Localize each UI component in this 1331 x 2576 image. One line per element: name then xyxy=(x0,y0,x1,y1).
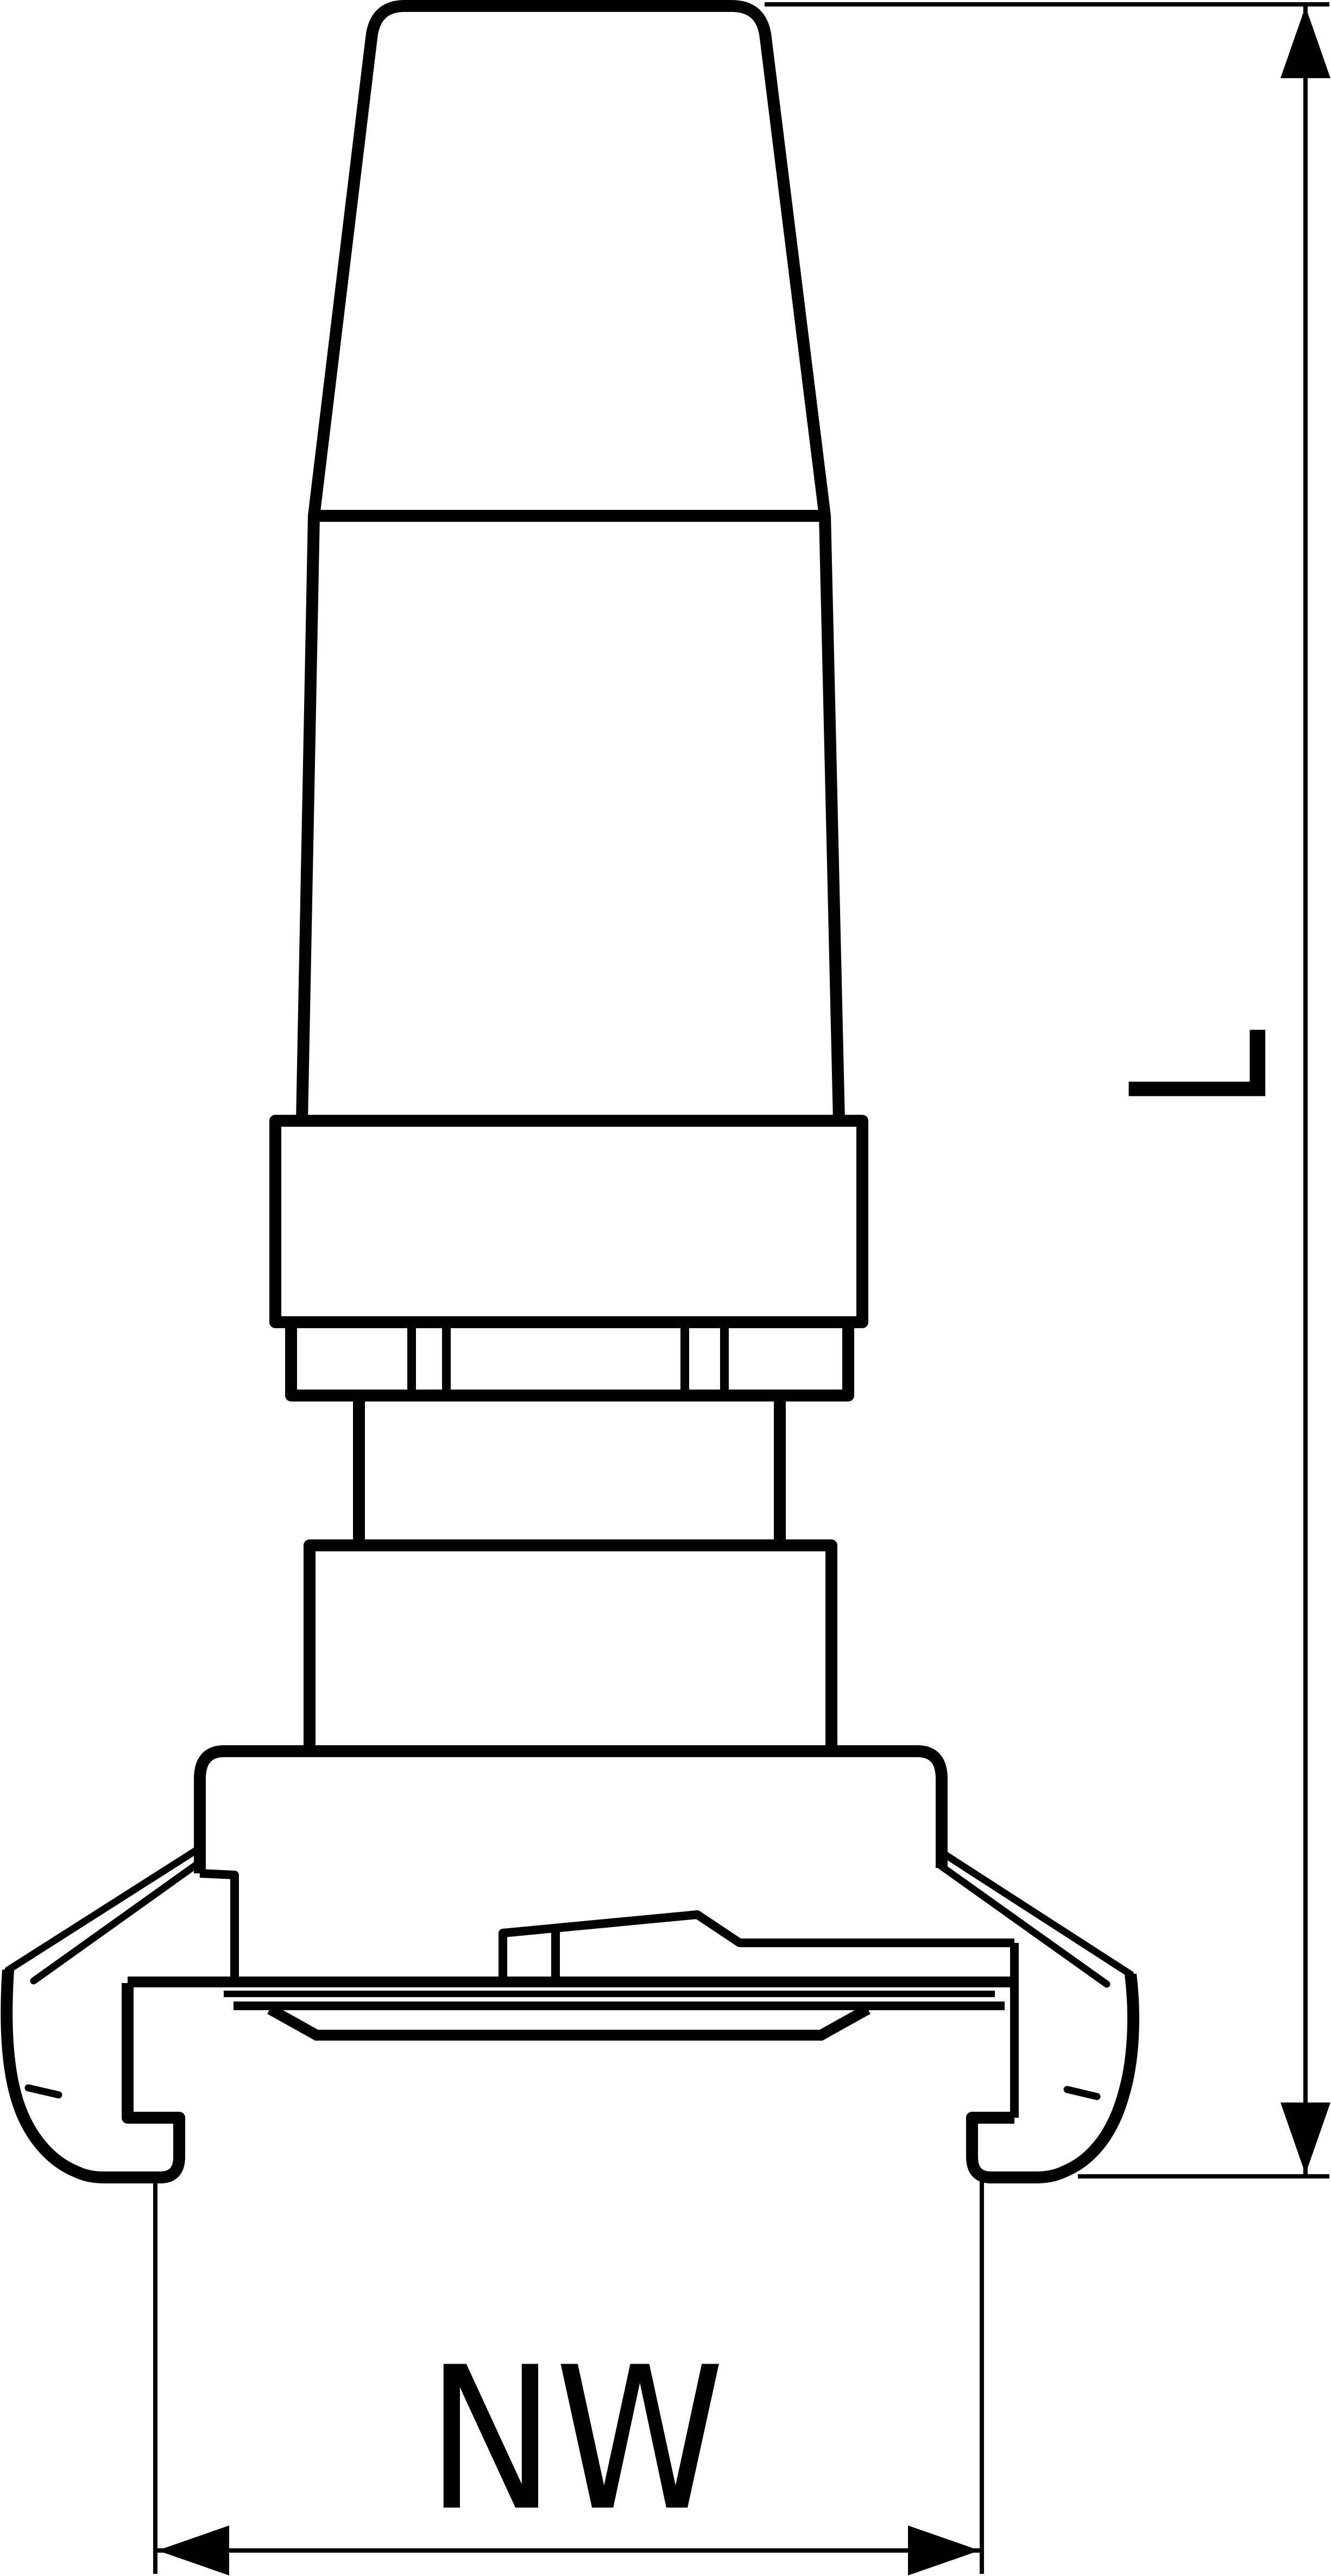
gasket-lines xyxy=(128,1982,1014,2035)
left-claw xyxy=(7,1970,179,2177)
left-claw-profile xyxy=(7,1970,179,2177)
nozzle-cone xyxy=(302,6,839,1121)
body-left-inner-wall xyxy=(200,1873,235,1979)
right-arm-outer-line xyxy=(941,1852,1131,1974)
arrow-right-icon xyxy=(908,2526,980,2575)
collar-outline xyxy=(275,1121,862,1322)
length-dimension: L xyxy=(765,4,1330,2176)
coupling-body xyxy=(200,1751,1014,2118)
lever-outline xyxy=(503,1915,1014,1982)
ribbed-ring xyxy=(291,1322,848,1396)
hex-collar xyxy=(275,1121,862,1322)
left-arm-inner-line xyxy=(34,1861,201,1981)
right-arm-inner-line xyxy=(941,1866,1107,1984)
arrow-down-icon xyxy=(1280,2103,1330,2174)
neck-cylinder xyxy=(359,1396,780,1545)
ribbed-ring-outline xyxy=(291,1322,848,1396)
right-claw-notch-tick xyxy=(1067,2089,1097,2097)
technical-drawing-page: L NW xyxy=(0,0,1331,2576)
width-label: NW xyxy=(427,2325,725,2555)
base-block-outline xyxy=(310,1545,831,1751)
left-arm-outer-line xyxy=(8,1847,201,1970)
left-claw-notch-tick xyxy=(28,2088,59,2095)
claw-arms xyxy=(8,1847,1131,1984)
length-label: L xyxy=(1092,1028,1309,1110)
base-block xyxy=(310,1545,831,1751)
width-dimension: NW xyxy=(155,2179,982,2575)
hose-nozzle-coupling-drawing: L NW xyxy=(0,0,1331,2576)
locking-lever xyxy=(503,1915,1014,1982)
arrow-up-icon xyxy=(1280,7,1330,78)
body-chin-plate xyxy=(270,2009,868,2035)
cone-outline xyxy=(302,6,839,1121)
body-top-plate xyxy=(200,1751,942,1873)
arrow-left-icon xyxy=(157,2526,229,2575)
